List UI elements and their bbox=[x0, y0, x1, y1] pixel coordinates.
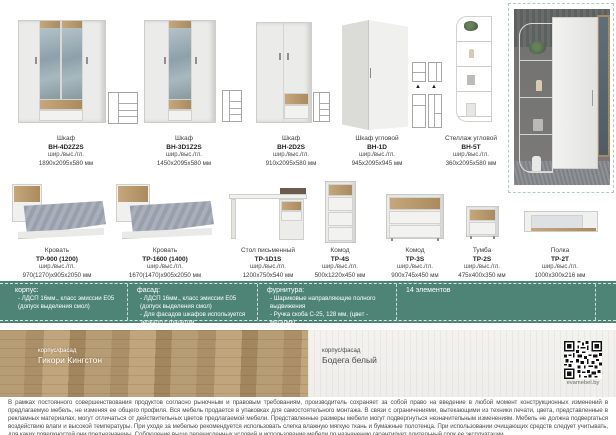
product-card: Шкаф угловой ВН-1D шир./выс./гл. 945х209… bbox=[338, 8, 416, 170]
product-image-corner-shelf bbox=[456, 16, 492, 122]
product-card: Полка ТР-2Т шир./выс./гл. 1000х300х216 м… bbox=[510, 180, 610, 280]
photo-wardrobe-door bbox=[552, 17, 598, 169]
product-label: Шкаф ВН-3D1Z2S шир./выс./гл. 1450х2095х5… bbox=[128, 135, 240, 168]
product-card: Шкаф ВН-2D2S шир./выс./гл. 910х2095х580 … bbox=[246, 8, 336, 170]
info-item: - ЛДСП 16мм., класс эмиссии Е05 (допуск … bbox=[15, 295, 121, 311]
product-code: ТР-1600 (1400) bbox=[112, 256, 218, 265]
texture-swatch-bodega-white: корпус/фасад Бодега белый bbox=[308, 330, 616, 397]
product-label: Стол письменный ТР-1D1S шир./выс./гл. 12… bbox=[222, 247, 314, 280]
product-dims-label: шир./выс./гл. bbox=[4, 264, 110, 272]
product-dims-label: шир./выс./гл. bbox=[510, 264, 610, 272]
room-photo-frame bbox=[508, 3, 614, 193]
product-code: ТР-1D1S bbox=[222, 256, 314, 265]
product-dims-label: шир./выс./гл. bbox=[246, 152, 336, 160]
product-dims-label: шир./выс./гл. bbox=[222, 264, 314, 272]
product-image-bed bbox=[12, 184, 106, 242]
product-code: ТР-2S bbox=[448, 256, 516, 265]
product-card: Тумба ТР-2S шир./выс./гл. 475х400х350 мм bbox=[460, 180, 504, 280]
texture-name: Бодега белый bbox=[322, 355, 377, 365]
product-code: ТР-4S bbox=[308, 256, 372, 265]
product-card: ▲ ▲ Стеллаж угловой ВН-5Т шир./выс./гл. … bbox=[412, 8, 516, 170]
texture-swatch-hickory: корпус/фасад Гикори Кингстон bbox=[0, 330, 308, 397]
texture-caption: корпус/фасад bbox=[322, 347, 377, 355]
product-size: 1450х2095х580 мм bbox=[128, 160, 240, 168]
catalog-page: Шкаф ВН-4D2Z2S шир./выс./гл. 1890х2095х5… bbox=[0, 0, 616, 435]
product-code: ВН-4D2Z2S bbox=[6, 144, 126, 153]
info-item: - Для фасадов шкафов используется зеркал… bbox=[137, 311, 251, 327]
product-image-wall-shelf bbox=[524, 211, 598, 232]
texture-name: Гикори Кингстон bbox=[38, 355, 102, 365]
info-item: - ЛДСП 16мм., класс эмиссии Е05 (допуск … bbox=[137, 295, 251, 311]
product-size: 970(1270)х905х2050 мм bbox=[4, 272, 110, 280]
product-dims-label: шир./выс./гл. bbox=[338, 152, 416, 160]
photo-corner-shelf bbox=[519, 23, 553, 173]
product-card: Комод ТР-4S шир./выс./гл. 500х1220х450 м… bbox=[316, 180, 364, 280]
product-code: ТР-2Т bbox=[510, 256, 610, 265]
product-card: Комод ТР-3S шир./выс./гл. 900х745х450 мм bbox=[372, 180, 458, 280]
photo-mirror bbox=[597, 15, 610, 157]
product-card: Шкаф ВН-3D1Z2S шир./выс./гл. 1450х2095х5… bbox=[128, 8, 240, 170]
product-size: 1890х2095х580 мм bbox=[6, 160, 126, 168]
qr-code bbox=[564, 341, 602, 379]
product-dims-label: шир./выс./гл. bbox=[128, 152, 240, 160]
product-size: 1670(1470)х905х2050 мм bbox=[112, 272, 218, 280]
product-card: Кровать ТР-1600 (1400) шир./выс./гл. 167… bbox=[112, 180, 218, 280]
product-image-wardrobe-4door bbox=[18, 20, 106, 123]
product-size: 500х1220х450 мм bbox=[308, 272, 372, 280]
product-code: ВН-3D1Z2S bbox=[128, 144, 240, 153]
info-item: - Шариковые направляющие полного выдвиже… bbox=[267, 295, 390, 311]
product-image-desk bbox=[229, 188, 307, 240]
product-label: Стеллаж угловой ВН-5Т шир./выс./гл. 360х… bbox=[426, 135, 516, 168]
product-label: Полка ТР-2Т шир./выс./гл. 1000х300х216 м… bbox=[510, 247, 610, 280]
product-image-bed bbox=[116, 184, 214, 242]
product-code: ВН-1D bbox=[338, 144, 416, 153]
product-size: 1000х300х216 мм bbox=[510, 272, 610, 280]
product-name: Кровать bbox=[4, 247, 110, 256]
product-size: 900х745х450 мм bbox=[372, 272, 458, 280]
product-size: 910х2095х580 мм bbox=[246, 160, 336, 168]
photo-plant bbox=[529, 41, 546, 54]
texture-label: корпус/фасад Гикори Кингстон bbox=[38, 347, 102, 366]
product-size: 945х2095х945 мм bbox=[338, 160, 416, 168]
product-card: Стол письменный ТР-1D1S шир./выс./гл. 12… bbox=[222, 180, 314, 280]
product-name: Тумба bbox=[448, 247, 516, 256]
product-code: ТР-3S bbox=[372, 256, 458, 265]
product-image-wardrobe-2door bbox=[256, 22, 312, 123]
product-label: Шкаф ВН-2D2S шир./выс./гл. 910х2095х580 … bbox=[246, 135, 336, 168]
info-column-title: фурнитура: bbox=[267, 287, 390, 294]
materials-info-bar: корпус: - ЛДСП 16мм., класс эмиссии Е05 … bbox=[0, 281, 616, 323]
product-name: Шкаф bbox=[246, 135, 336, 144]
info-column-fasad: фасад: - ЛДСП 16мм., класс эмиссии Е05 (… bbox=[128, 284, 258, 320]
product-label: Кровать ТР-1600 (1400) шир./выс./гл. 167… bbox=[112, 247, 218, 280]
product-dims-label: шир./выс./гл. bbox=[448, 264, 516, 272]
assembly-schematic-icons: ▲ ▲ bbox=[412, 62, 442, 128]
room-photo bbox=[514, 9, 610, 185]
product-image-nightstand bbox=[466, 206, 499, 237]
info-column-elements-count: 14 элементов bbox=[397, 284, 596, 320]
product-label: Тумба ТР-2S шир./выс./гл. 475х400х350 мм bbox=[448, 247, 516, 280]
product-image-chest-tall bbox=[325, 181, 356, 243]
product-label: Кровать ТР-900 (1200) шир./выс./гл. 970(… bbox=[4, 247, 110, 280]
product-name: Комод bbox=[308, 247, 372, 256]
product-image-wardrobe-3door bbox=[144, 20, 216, 123]
interior-schematic-icon bbox=[222, 90, 242, 122]
product-image-chest-wide bbox=[386, 194, 444, 239]
product-card: Кровать ТР-900 (1200) шир./выс./гл. 970(… bbox=[4, 180, 110, 280]
info-column-title: корпус: bbox=[15, 287, 121, 294]
qr-caption: evamebel.by bbox=[558, 380, 608, 386]
product-name: Стеллаж угловой bbox=[426, 135, 516, 144]
product-label: Шкаф угловой ВН-1D шир./выс./гл. 945х209… bbox=[338, 135, 416, 168]
product-name: Шкаф bbox=[128, 135, 240, 144]
elements-count: 14 элементов bbox=[406, 287, 589, 294]
info-column-furnitura: фурнитура: - Шариковые направляющие полн… bbox=[258, 284, 397, 320]
product-dims-label: шир./выс./гл. bbox=[6, 152, 126, 160]
product-size: 475х400х350 мм bbox=[448, 272, 516, 280]
product-label: Шкаф ВН-4D2Z2S шир./выс./гл. 1890х2095х5… bbox=[6, 135, 126, 168]
product-name: Полка bbox=[510, 247, 610, 256]
product-code: ТР-900 (1200) bbox=[4, 256, 110, 265]
product-size: 360х2095х580 мм bbox=[426, 160, 516, 168]
product-size: 1200х750х540 мм bbox=[222, 272, 314, 280]
product-name: Шкаф угловой bbox=[338, 135, 416, 144]
info-column-title: фасад: bbox=[137, 287, 251, 294]
product-name: Шкаф bbox=[6, 135, 126, 144]
product-code: ВН-2D2S bbox=[246, 144, 336, 153]
product-dims-label: шир./выс./гл. bbox=[112, 264, 218, 272]
interior-schematic-icon bbox=[313, 92, 330, 122]
product-dims-label: шир./выс./гл. bbox=[426, 152, 516, 160]
product-name: Кровать bbox=[112, 247, 218, 256]
product-image-corner-wardrobe bbox=[342, 20, 408, 130]
product-dims-label: шир./выс./гл. bbox=[308, 264, 372, 272]
plant-decor bbox=[464, 21, 478, 31]
info-column-korpus: корпус: - ЛДСП 16мм., класс эмиссии Е05 … bbox=[6, 284, 128, 320]
product-label: Комод ТР-3S шир./выс./гл. 900х745х450 мм bbox=[372, 247, 458, 280]
product-label: Комод ТР-4S шир./выс./гл. 500х1220х450 м… bbox=[308, 247, 372, 280]
info-item: - Ручка скоба С-25, 128 мм, (цвет - мета… bbox=[267, 311, 390, 327]
product-name: Комод bbox=[372, 247, 458, 256]
legal-disclaimer-text: В рамках постоянного совершенствования п… bbox=[8, 399, 608, 435]
product-dims-label: шир./выс./гл. bbox=[372, 264, 458, 272]
product-name: Стол письменный bbox=[222, 247, 314, 256]
texture-label: корпус/фасад Бодега белый bbox=[322, 347, 377, 366]
product-code: ВН-5Т bbox=[426, 144, 516, 153]
product-card: Шкаф ВН-4D2Z2S шир./выс./гл. 1890х2095х5… bbox=[6, 8, 126, 170]
